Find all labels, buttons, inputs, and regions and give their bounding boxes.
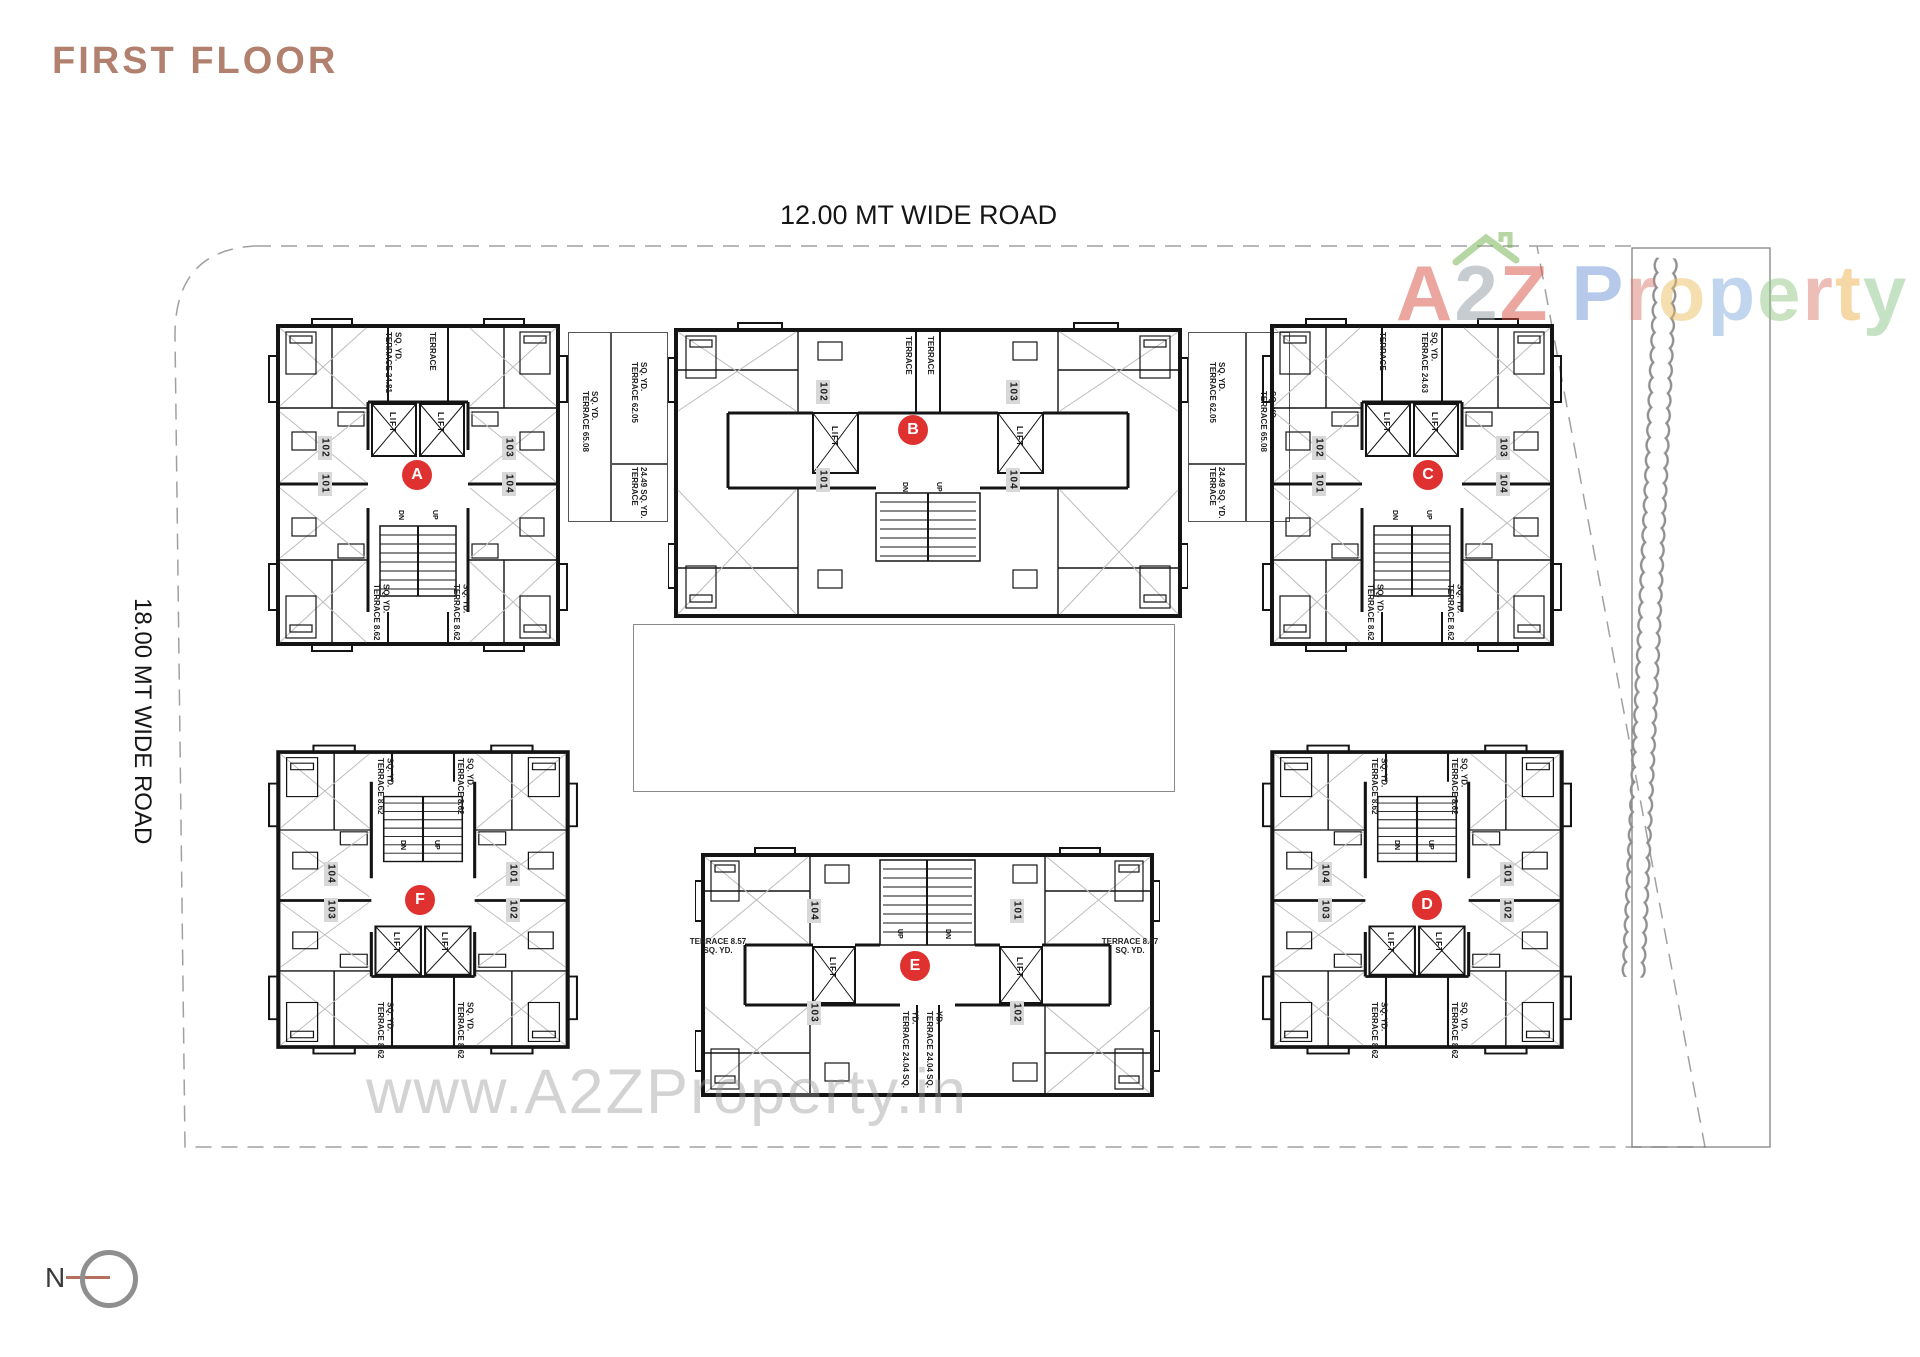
lift-label: LIFT [1015,957,1024,978]
terrace-label: TERRACE [428,332,437,371]
lift-label: LIFT [440,932,449,953]
terrace-label: TERRACE 8.62 SQ. YD. [452,584,470,656]
unit-label: 103 [502,436,516,460]
stairs-label-dn: DN [1390,510,1398,520]
north-label: N [45,1262,65,1294]
north-compass: N [40,1245,160,1315]
terrace-label: TERRACE 8.62 SQ. YD. [372,584,390,656]
terrace-label: TERRACE 24.49 SQ. YD. [630,467,648,519]
terrace-label: TERRACE 8.62 SQ. YD. [456,758,474,830]
lift-label: LIFT [828,957,837,978]
unit-label: 101 [506,862,520,886]
logo-letter: o [1658,248,1708,339]
block-a: A 102 101 103 104 LIFT LIFT DN UP TERRAC… [268,312,568,657]
unit-label: 103 [1006,380,1020,404]
logo-letter: r [1802,248,1834,339]
terrace-label: TERRACE 8.62 SQ. YD. [1366,584,1384,656]
road-label-left: 18.00 MT WIDE ROAD [128,598,156,844]
terrace-label: TERRACE 24.49 SQ. YD. [1208,467,1226,519]
block-b: B 102 101 103 104 LIFT LIFT DN UP TERRAC… [668,318,1188,628]
block-badge-c: C [1413,460,1443,490]
block-c: C 102 101 103 104 LIFT LIFT DN UP TERRAC… [1262,312,1562,657]
block-badge-a: A [402,460,432,490]
lift-label: LIFT [436,412,445,433]
terrace-label: TERRACE 8.62 SQ. YD. [1446,584,1464,656]
terrace-label: TERRACE 24.63 SQ. YD. [1420,332,1438,404]
block-badge-e: E [900,951,930,981]
unit-label: 104 [1318,862,1332,886]
stairs-label-dn: DN [1392,840,1400,850]
roof-icon [1452,232,1530,266]
logo-letter: y [1863,248,1908,339]
lift-label: LIFT [392,932,401,953]
unit-label: 104 [1496,472,1510,496]
unit-label: 104 [324,862,338,886]
compass-circle [80,1250,138,1308]
block-f: F 104 103 101 102 LIFT LIFT DN UP TERRAC… [268,740,578,1060]
stairs-label-dn: DN [900,482,908,492]
terrace-label: TERRACE 65.08 SQ. YD. [581,391,599,463]
unit-label: 102 [1312,436,1326,460]
unit-label: 103 [1496,436,1510,460]
lift-label: LIFT [830,426,839,447]
stairs-label-up: UP [1424,510,1432,520]
terrace-label: TERRACE [926,336,935,375]
terrace-label: TERRACE 62.05 SQ. YD. [1208,362,1226,434]
unit-label: 102 [506,898,520,922]
watermark-url: www.A2ZProperty.in [366,1056,968,1128]
logo-letter: A [1396,248,1454,339]
unit-label: 104 [502,472,516,496]
logo-letter: t [1835,248,1863,339]
logo-letter: r [1625,248,1657,339]
unit-label: 101 [816,468,830,492]
lift-label: LIFT [1430,412,1439,433]
unit-label: 101 [1010,899,1024,923]
stairs-label-up: UP [895,929,903,939]
unit-label: 102 [1010,1001,1024,1025]
floor-plan-page: FIRST FLOOR 12.00 MT WIDE ROAD 18.00 MT … [0,0,1920,1357]
terrace-label: TERRACE 8.57 SQ. YD. [1099,937,1161,955]
central-court [633,624,1175,792]
terrace-label: TERRACE 24.81 SQ. YD. [384,332,402,404]
a2z-property-logo: A2ZProperty [1396,248,1908,339]
unit-label: 101 [1500,862,1514,886]
logo-letter: e [1757,248,1802,339]
terrace-label: TERRACE [1378,332,1387,371]
lift-label: LIFT [1434,932,1443,953]
unit-label: 104 [807,899,821,923]
terrace-label: TERRACE 62.05 SQ. YD. [630,362,648,434]
terrace-label: TERRACE 8.62 SQ. YD. [376,1002,394,1060]
block-d: D 104 103 101 102 LIFT LIFT DN UP TERRAC… [1262,740,1572,1060]
logo-letter: p [1707,248,1757,339]
unit-label: 101 [1312,472,1326,496]
terrace-label: TERRACE 8.62 SQ. YD. [1450,1002,1468,1060]
unit-label: 103 [324,898,338,922]
stairs-label-up: UP [430,510,438,520]
unit-label: 102 [816,380,830,404]
unit-label: 101 [318,472,332,496]
unit-label: 102 [1500,898,1514,922]
terrace-label: TERRACE 8.62 SQ. YD. [1370,1002,1388,1060]
block-badge-b: B [898,415,928,445]
lift-label: LIFT [388,412,397,433]
terrace-label: TERRACE 8.62 SQ. YD. [1370,758,1388,830]
block-badge-d: D [1412,890,1442,920]
stairs-label-dn: DN [398,840,406,850]
lift-label: LIFT [1382,412,1391,433]
terrace-label: TERRACE 8.62 SQ. YD. [376,758,394,830]
unit-label: 102 [318,436,332,460]
unit-label: 104 [1006,468,1020,492]
unit-label: 103 [1318,898,1332,922]
terrace-label: TERRACE 8.62 SQ. YD. [1450,758,1468,830]
terrace-label: TERRACE [904,336,913,375]
stairs-label-dn: DN [396,510,404,520]
page-title: FIRST FLOOR [52,40,338,83]
lift-label: LIFT [1015,426,1024,447]
road-label-top: 12.00 MT WIDE ROAD [780,200,1057,231]
stairs-label-up: UP [432,840,440,850]
stairs-label-up: UP [1426,840,1434,850]
terrace-label: TERRACE 8.57 SQ. YD. [687,937,749,955]
lift-label: LIFT [1386,932,1395,953]
terrace-label: TERRACE 8.62 SQ. YD. [456,1002,474,1060]
stairs-label-dn: DN [943,929,951,939]
logo-letter: P [1571,248,1625,339]
terrace-connector-left: TERRACE 65.08 SQ. YD. TERRACE 62.05 SQ. … [568,332,668,522]
block-badge-f: F [405,885,435,915]
unit-label: 103 [807,1001,821,1025]
stairs-label-up: UP [934,482,942,492]
